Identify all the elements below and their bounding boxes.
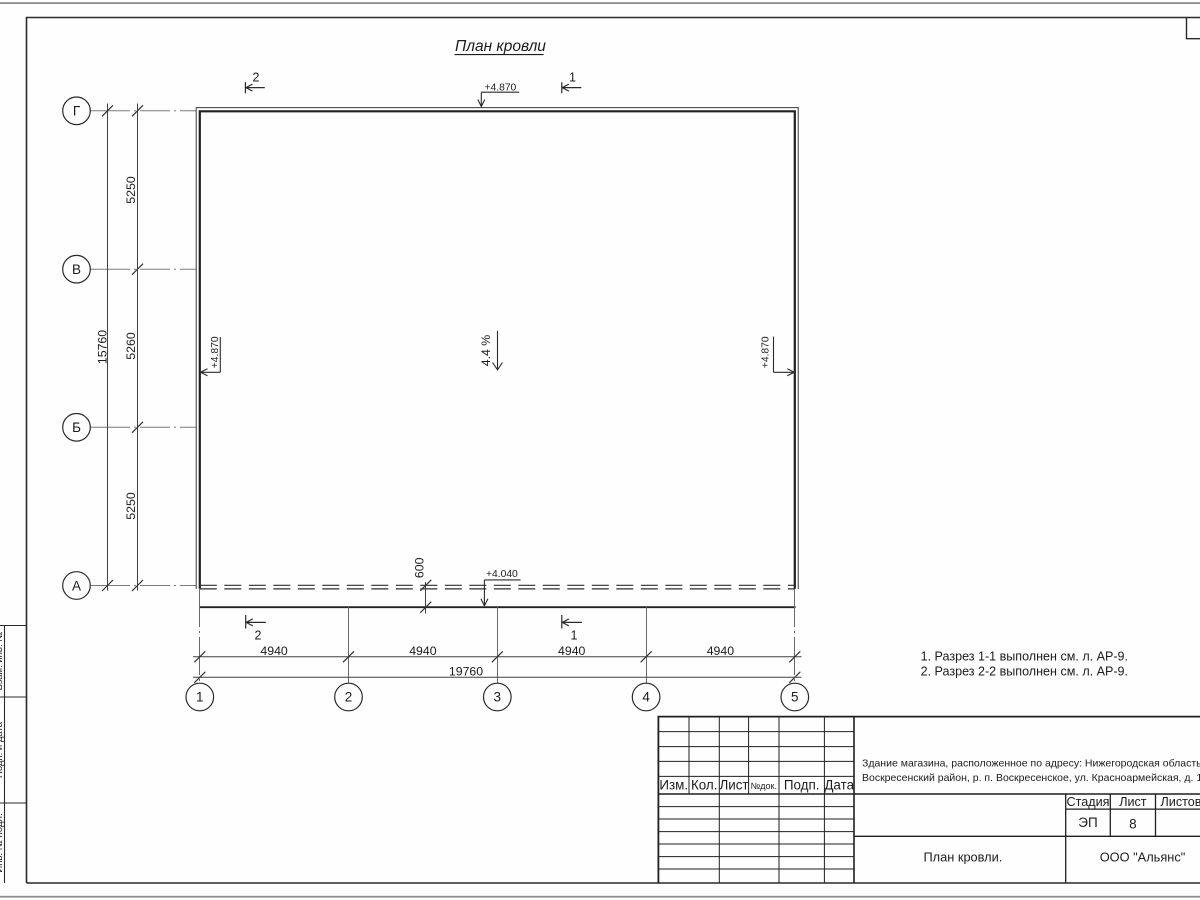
svg-text:Инв. № подл.: Инв. № подл. [0, 813, 5, 872]
svg-text:Б: Б [72, 420, 81, 435]
svg-text:Г: Г [73, 104, 81, 119]
svg-text:2: 2 [253, 71, 260, 85]
svg-text:Стадия: Стадия [1067, 795, 1110, 809]
svg-text:1: 1 [196, 690, 204, 705]
svg-text:Изм.: Изм. [659, 778, 688, 793]
svg-text:В: В [72, 262, 81, 277]
svg-text:Подп. и дата: Подп. и дата [0, 721, 5, 778]
svg-text:8: 8 [1129, 816, 1137, 831]
svg-text:15760: 15760 [95, 330, 109, 364]
svg-text:2: 2 [345, 690, 353, 705]
svg-text:Лист: Лист [719, 778, 748, 793]
svg-text:4940: 4940 [707, 644, 735, 658]
svg-text:Воскресенский район, р. п. Вос: Воскресенский район, р. п. Воскресенское… [862, 772, 1200, 784]
svg-text:1: 1 [571, 629, 578, 643]
svg-text:Взам. инв. №: Взам. инв. № [0, 632, 5, 691]
svg-text:4940: 4940 [260, 644, 288, 658]
svg-text:4: 4 [642, 690, 650, 705]
svg-text:4940: 4940 [409, 644, 437, 658]
svg-text:Дата: Дата [824, 778, 854, 793]
svg-text:Кол.: Кол. [691, 778, 718, 793]
svg-text:ЭП: ЭП [1078, 815, 1097, 830]
svg-text:ООО "Альянс": ООО "Альянс" [1100, 850, 1186, 865]
svg-text:2. Разрез 2-2 выполнен см. л.: 2. Разрез 2-2 выполнен см. л. АР-9. [921, 664, 1128, 678]
svg-text:Листов: Листов [1161, 795, 1200, 809]
svg-text:+4.870: +4.870 [210, 336, 221, 368]
svg-text:План кровли: План кровли [455, 38, 546, 55]
svg-text:5: 5 [791, 690, 799, 705]
svg-text:Лист: Лист [1119, 795, 1147, 809]
svg-text:1. Разрез 1-1 выполнен см. л.: 1. Разрез 1-1 выполнен см. л. АР-9. [921, 650, 1128, 664]
svg-text:План кровли.: План кровли. [923, 850, 1002, 865]
svg-text:5250: 5250 [124, 176, 138, 204]
svg-text:А: А [72, 578, 81, 593]
svg-text:+4.040: +4.040 [486, 569, 518, 580]
svg-text:2: 2 [255, 629, 262, 643]
svg-text:5260: 5260 [124, 332, 138, 360]
svg-text:3: 3 [494, 690, 502, 705]
svg-text:+4.870: +4.870 [761, 336, 772, 368]
svg-text:№док.: №док. [751, 781, 777, 791]
svg-text:1: 1 [569, 71, 576, 85]
svg-text:Здание магазина, расположенное: Здание магазина, расположенное по адресу… [862, 758, 1200, 770]
svg-text:4.4 %: 4.4 % [479, 335, 493, 367]
svg-text:19760: 19760 [449, 664, 483, 678]
svg-text:4940: 4940 [558, 644, 586, 658]
svg-text:600: 600 [412, 557, 426, 578]
svg-text:5250: 5250 [124, 492, 138, 520]
svg-text:Подп.: Подп. [784, 778, 820, 793]
